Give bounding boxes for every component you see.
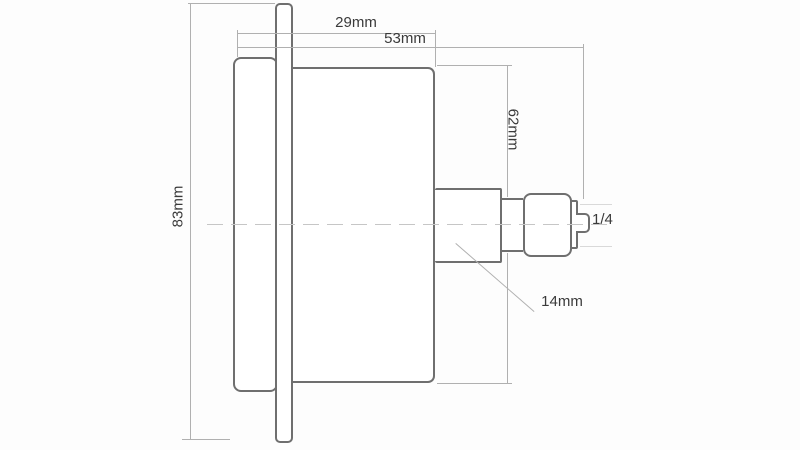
dim-62-line-lower [507,253,508,383]
dim-62-extension-bottom [437,383,512,384]
dim-83-label: 83mm [171,186,186,228]
thread-extension-line-bottom [580,246,612,247]
dim-29-extension-right [435,30,436,67]
dim-62-extension-top [437,65,512,66]
front-flange-plate [275,3,293,443]
gauge-technical-drawing: 83mm 29mm 53mm 62mm 14mm 1/4 [0,0,800,450]
gauge-body-case [293,67,435,383]
dim-83-line [190,3,191,439]
thread-extension-line-top [580,204,612,205]
horizontal-centerline [207,224,612,225]
thread-size-label: 1/4 [592,212,628,227]
connection-neck [502,198,523,252]
dim-62-label: 62mm [506,109,521,151]
dim-14-label: 14mm [536,294,588,309]
dim-29-label: 29mm [330,15,382,30]
connection-stub [435,188,502,263]
dim-83-extension-bottom [182,439,230,440]
thread-tip [576,213,590,233]
dim-53-extension-right [583,44,584,199]
dim-29-extension-left [237,30,238,57]
dim-83-extension-top [188,3,275,4]
dim-53-label: 53mm [379,31,431,46]
hex-nut [523,193,572,257]
dim-53-line [237,47,583,48]
